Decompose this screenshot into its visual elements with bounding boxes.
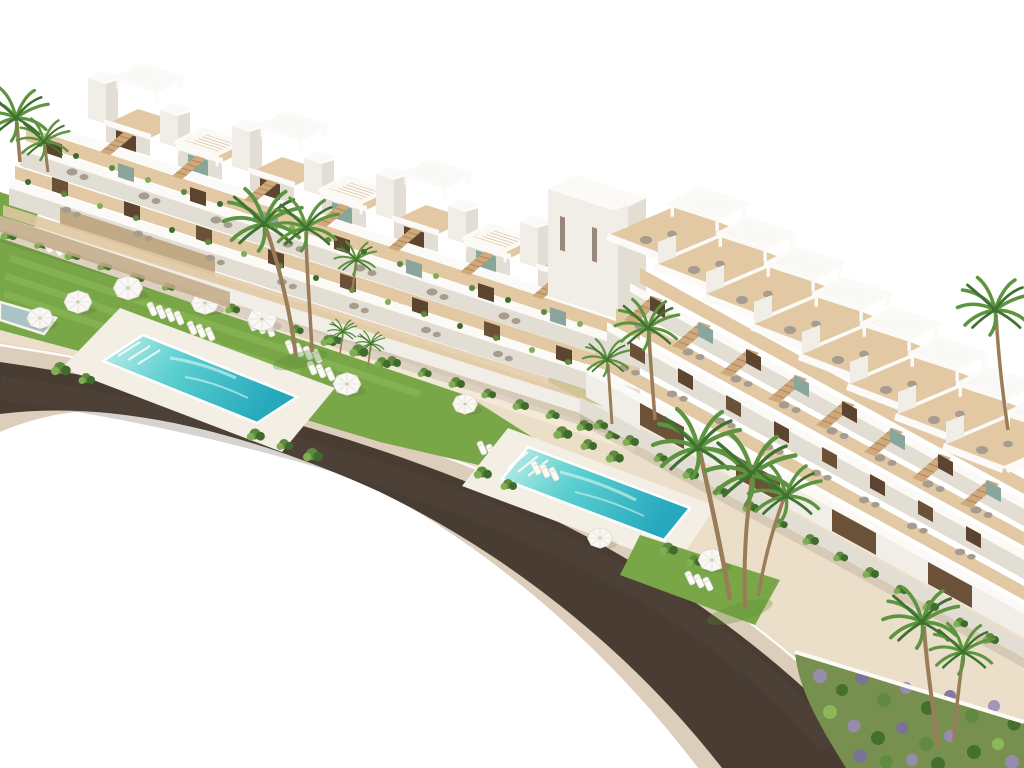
scene-render: Aerial 3D architectural rendering of a m… xyxy=(0,0,1024,768)
render-stage: Aerial 3D architectural rendering of a m… xyxy=(0,0,1024,768)
